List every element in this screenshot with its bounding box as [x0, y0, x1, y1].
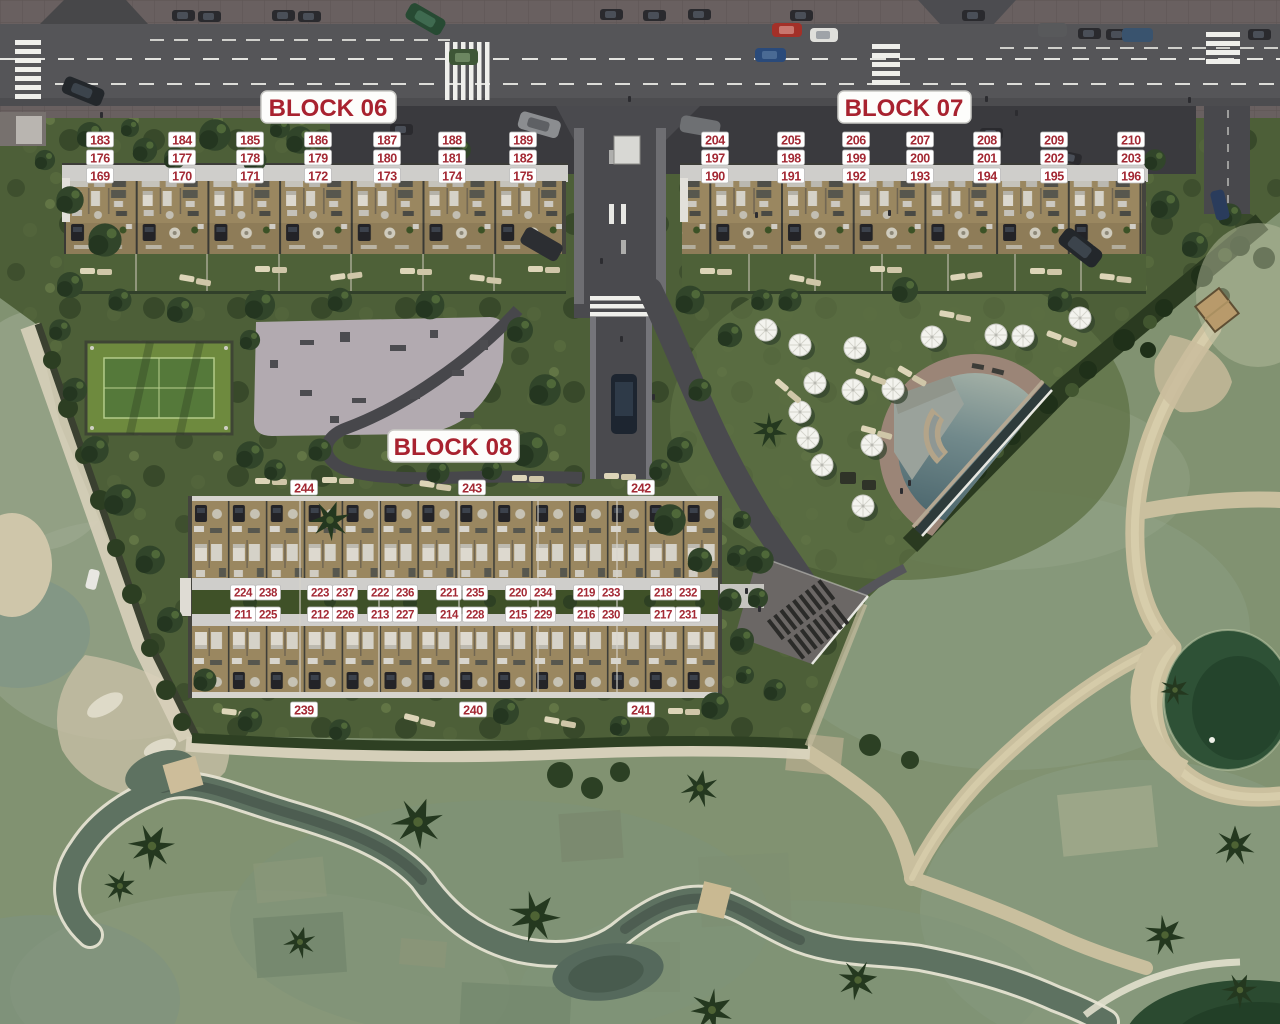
svg-text:183: 183 — [90, 134, 110, 148]
svg-text:179: 179 — [308, 152, 328, 166]
svg-text:BLOCK 07: BLOCK 07 — [845, 95, 964, 122]
svg-text:181: 181 — [442, 152, 462, 166]
svg-text:201: 201 — [977, 152, 997, 166]
svg-text:235: 235 — [466, 588, 485, 600]
svg-text:BLOCK 06: BLOCK 06 — [269, 95, 388, 122]
svg-text:229: 229 — [534, 610, 552, 622]
svg-text:208: 208 — [977, 134, 997, 148]
svg-text:230: 230 — [602, 610, 620, 622]
svg-text:206: 206 — [846, 134, 866, 148]
svg-text:185: 185 — [240, 134, 260, 148]
svg-text:207: 207 — [910, 134, 930, 148]
svg-text:172: 172 — [308, 170, 328, 184]
svg-text:214: 214 — [440, 610, 459, 622]
svg-text:BLOCK 08: BLOCK 08 — [394, 434, 513, 461]
svg-text:189: 189 — [513, 134, 533, 148]
svg-text:194: 194 — [977, 170, 997, 184]
svg-text:175: 175 — [513, 170, 533, 184]
svg-text:186: 186 — [308, 134, 328, 148]
svg-text:204: 204 — [705, 134, 725, 148]
svg-text:217: 217 — [654, 610, 672, 622]
svg-text:170: 170 — [172, 170, 192, 184]
svg-text:227: 227 — [396, 610, 414, 622]
svg-text:203: 203 — [1121, 152, 1141, 166]
svg-text:238: 238 — [259, 588, 278, 600]
svg-text:199: 199 — [846, 152, 866, 166]
svg-text:173: 173 — [377, 170, 397, 184]
svg-text:236: 236 — [396, 588, 414, 600]
svg-text:182: 182 — [513, 152, 533, 166]
svg-text:196: 196 — [1121, 170, 1141, 184]
svg-text:228: 228 — [466, 610, 485, 622]
svg-text:233: 233 — [602, 588, 620, 600]
svg-text:192: 192 — [846, 170, 866, 184]
svg-text:234: 234 — [534, 588, 553, 600]
svg-text:239: 239 — [294, 704, 314, 718]
svg-text:174: 174 — [442, 170, 462, 184]
svg-text:176: 176 — [90, 152, 110, 166]
svg-text:226: 226 — [336, 610, 354, 622]
svg-text:224: 224 — [234, 588, 253, 600]
svg-text:205: 205 — [781, 134, 801, 148]
svg-text:195: 195 — [1044, 170, 1064, 184]
svg-text:223: 223 — [311, 588, 329, 600]
svg-text:219: 219 — [577, 588, 595, 600]
svg-text:198: 198 — [781, 152, 801, 166]
svg-text:177: 177 — [172, 152, 192, 166]
svg-text:222: 222 — [371, 588, 389, 600]
svg-text:218: 218 — [654, 588, 673, 600]
svg-text:242: 242 — [631, 482, 651, 496]
svg-text:188: 188 — [442, 134, 462, 148]
svg-text:190: 190 — [705, 170, 725, 184]
svg-text:240: 240 — [463, 704, 483, 718]
svg-text:211: 211 — [234, 610, 252, 622]
svg-text:237: 237 — [336, 588, 354, 600]
svg-text:215: 215 — [509, 610, 528, 622]
svg-text:202: 202 — [1044, 152, 1064, 166]
svg-text:169: 169 — [90, 170, 110, 184]
svg-text:210: 210 — [1121, 134, 1141, 148]
svg-text:213: 213 — [371, 610, 389, 622]
svg-text:187: 187 — [377, 134, 397, 148]
svg-text:231: 231 — [679, 610, 698, 622]
svg-text:244: 244 — [294, 482, 314, 496]
svg-text:197: 197 — [705, 152, 725, 166]
svg-text:221: 221 — [440, 588, 459, 600]
svg-text:220: 220 — [509, 588, 527, 600]
svg-text:178: 178 — [240, 152, 260, 166]
svg-text:200: 200 — [910, 152, 930, 166]
svg-text:243: 243 — [462, 482, 482, 496]
svg-text:184: 184 — [172, 134, 192, 148]
svg-text:193: 193 — [910, 170, 930, 184]
svg-text:209: 209 — [1044, 134, 1064, 148]
svg-text:216: 216 — [577, 610, 595, 622]
svg-text:191: 191 — [781, 170, 801, 184]
svg-text:212: 212 — [311, 610, 329, 622]
svg-text:232: 232 — [679, 588, 697, 600]
svg-text:180: 180 — [377, 152, 397, 166]
svg-text:171: 171 — [240, 170, 260, 184]
svg-text:241: 241 — [631, 704, 651, 718]
svg-text:225: 225 — [259, 610, 278, 622]
